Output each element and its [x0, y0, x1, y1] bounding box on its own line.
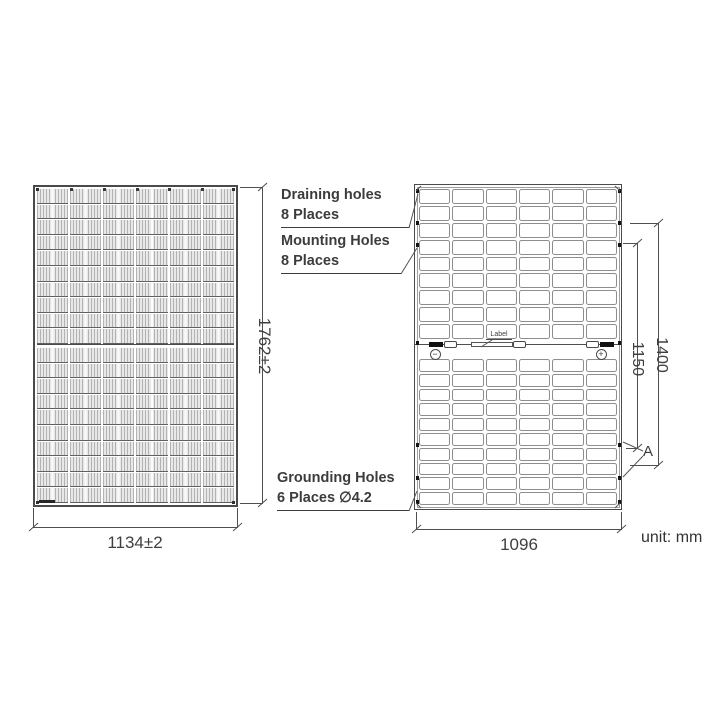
front-cell: [203, 348, 234, 363]
front-cell: [37, 189, 68, 204]
back-cell: [519, 257, 550, 272]
back-cell: [452, 389, 483, 402]
front-cell: [37, 251, 68, 266]
front-cell: [203, 205, 234, 220]
front-cell: [170, 189, 201, 204]
back-cell: [452, 273, 483, 288]
front-cell: [170, 473, 201, 488]
front-cell: [103, 442, 134, 457]
front-cell: [136, 267, 167, 282]
callout-line: Mounting Holes: [281, 231, 401, 251]
back-cell: [486, 492, 517, 505]
front-cell: [37, 426, 68, 441]
junction-box-left: [444, 341, 457, 348]
back-cell: [586, 477, 617, 490]
back-cell: [519, 324, 550, 339]
callout-mounting-holes: Mounting Holes 8 Places: [281, 231, 401, 274]
back-cell: [486, 433, 517, 446]
front-height-dimension: 1762±2: [254, 311, 274, 381]
back-cell: [519, 307, 550, 322]
front-cell: [203, 314, 234, 329]
back-cell: [419, 273, 450, 288]
junction-connector-left: [429, 342, 443, 347]
front-cell: [203, 329, 234, 344]
back-cell: [519, 223, 550, 238]
front-cell: [170, 395, 201, 410]
back-cell: [519, 290, 550, 305]
back-cell: [519, 418, 550, 431]
front-cell: [203, 410, 234, 425]
front-cell: [170, 364, 201, 379]
front-cell: [203, 236, 234, 251]
back-cell: [552, 463, 583, 476]
back-cell: [586, 448, 617, 461]
front-cell: [203, 283, 234, 298]
callout-line: Draining holes: [281, 185, 409, 205]
front-cell: [170, 410, 201, 425]
back-cell: [552, 403, 583, 416]
back-cell: [419, 463, 450, 476]
back-width-dimension-line: [412, 512, 626, 533]
back-width-dimension: 1096: [479, 535, 559, 555]
back-cell: [419, 433, 450, 446]
front-cell: [103, 379, 134, 394]
back-cell: [452, 240, 483, 255]
front-cell: [136, 251, 167, 266]
front-cell: [70, 348, 101, 363]
front-frame-mark: [168, 188, 171, 191]
front-cell: [203, 251, 234, 266]
back-cell: [519, 448, 550, 461]
front-cell: [70, 329, 101, 344]
back-cell: [419, 324, 450, 339]
back-cell: [452, 374, 483, 387]
front-cell: [170, 205, 201, 220]
back-cell: [486, 273, 517, 288]
back-cell: [486, 477, 517, 490]
front-cell: [136, 457, 167, 472]
front-cell: [170, 379, 201, 394]
frame-hole-mark: [618, 341, 621, 345]
front-cell: [136, 442, 167, 457]
front-frame-mark: [70, 188, 73, 191]
front-cell: [103, 329, 134, 344]
back-cell: [519, 273, 550, 288]
nameplate: [471, 342, 513, 347]
back-cell: [519, 403, 550, 416]
junction-box-right: [586, 341, 599, 348]
frame-hole-mark: [618, 221, 621, 225]
front-cell: [70, 364, 101, 379]
back-cell: [486, 374, 517, 387]
callout-line: 6 Places ∅4.2: [277, 488, 409, 508]
front-cell: [136, 220, 167, 235]
back-cell: [452, 463, 483, 476]
back-cell: [552, 374, 583, 387]
back-cell: [452, 257, 483, 272]
back-cell: [519, 206, 550, 221]
back-cell: [519, 189, 550, 204]
back-cell: [552, 189, 583, 204]
front-cell: [203, 189, 234, 204]
back-cell: [419, 189, 450, 204]
back-cell: [519, 477, 550, 490]
back-cell: [419, 206, 450, 221]
junction-connector-right: [600, 342, 614, 347]
back-cell: [586, 189, 617, 204]
front-cell: [170, 348, 201, 363]
section-a-leader-lines: [623, 442, 643, 477]
back-cell: [486, 206, 517, 221]
front-cell: [103, 220, 134, 235]
front-cell: [70, 379, 101, 394]
front-cell: [203, 426, 234, 441]
back-cell: [452, 403, 483, 416]
back-cell: [486, 223, 517, 238]
front-cell: [37, 220, 68, 235]
junction-box-center: [513, 341, 526, 348]
back-cell: [486, 418, 517, 431]
back-cell: [519, 374, 550, 387]
nameplate-label-text: Label: [486, 330, 512, 340]
back-cell: [519, 359, 550, 372]
back-content: − +: [419, 189, 617, 505]
front-corner-mark: [36, 188, 39, 191]
callout-line: 8 Places: [281, 205, 409, 225]
back-cell: [452, 290, 483, 305]
back-cell: [552, 257, 583, 272]
frame-hole-mark: [416, 443, 419, 447]
front-cell: [37, 473, 68, 488]
front-cell: [136, 205, 167, 220]
front-cell: [170, 329, 201, 344]
front-bottom-cell-grid: [37, 348, 234, 503]
back-cell: [552, 418, 583, 431]
back-cell: [419, 389, 450, 402]
frame-hole-mark: [416, 476, 419, 480]
back-cell: [586, 359, 617, 372]
back-cell: [419, 418, 450, 431]
front-cell: [136, 426, 167, 441]
front-cell: [37, 410, 68, 425]
positive-terminal-symbol: +: [596, 349, 607, 360]
back-cell: [452, 189, 483, 204]
back-cell: [552, 324, 583, 339]
back-cell: [419, 240, 450, 255]
callout-draining-holes: Draining holes 8 Places: [281, 185, 409, 228]
back-cell: [586, 463, 617, 476]
front-cell: [70, 410, 101, 425]
back-cell: [486, 290, 517, 305]
back-cell: [552, 359, 583, 372]
front-cell: [37, 442, 68, 457]
front-cell: [170, 314, 201, 329]
back-cell: [419, 257, 450, 272]
back-cell: [452, 307, 483, 322]
callout-line: 8 Places: [281, 251, 401, 271]
back-cell: [586, 290, 617, 305]
front-cell: [103, 488, 134, 503]
front-cell: [170, 236, 201, 251]
front-cell: [103, 298, 134, 313]
back-cell: [486, 257, 517, 272]
front-cell: [203, 457, 234, 472]
front-label-bar: [39, 500, 55, 503]
front-cell: [70, 457, 101, 472]
back-cell: [552, 477, 583, 490]
frame-hole-mark: [416, 243, 419, 247]
front-cell: [103, 251, 134, 266]
front-cell: [37, 379, 68, 394]
back-cell: [552, 206, 583, 221]
front-cell: [136, 364, 167, 379]
back-inner-height-dimension: 1150: [628, 324, 646, 394]
front-cell: [103, 426, 134, 441]
front-cell: [70, 283, 101, 298]
front-frame-mark: [201, 188, 204, 191]
front-cell: [136, 395, 167, 410]
front-cell: [37, 267, 68, 282]
back-cell: [452, 418, 483, 431]
front-cell: [37, 329, 68, 344]
back-cell: [552, 223, 583, 238]
front-cell: [103, 457, 134, 472]
back-cell: [486, 307, 517, 322]
back-cell: [419, 492, 450, 505]
back-cell: [586, 257, 617, 272]
front-cell: [203, 220, 234, 235]
front-cell: [103, 267, 134, 282]
front-cell: [103, 189, 134, 204]
front-cell: [203, 488, 234, 503]
back-cell: [419, 477, 450, 490]
front-cell: [103, 236, 134, 251]
front-cell: [103, 395, 134, 410]
back-cell: [586, 240, 617, 255]
back-cell: [452, 206, 483, 221]
front-cell: [103, 364, 134, 379]
frame-hole-mark: [416, 341, 419, 345]
front-cell: [203, 473, 234, 488]
front-cell: [70, 220, 101, 235]
back-cell: [419, 359, 450, 372]
front-cell: [136, 283, 167, 298]
back-cell: [552, 307, 583, 322]
back-cell: [519, 463, 550, 476]
back-cell: [486, 389, 517, 402]
front-cell: [37, 236, 68, 251]
front-cell: [37, 283, 68, 298]
front-cell: [37, 457, 68, 472]
back-cell: [486, 403, 517, 416]
unit-note: unit: mm: [641, 529, 719, 547]
back-cell: [452, 324, 483, 339]
front-cell: [170, 442, 201, 457]
front-cell: [203, 298, 234, 313]
front-cell: [136, 348, 167, 363]
back-top-cell-grid: [419, 189, 617, 339]
front-width-dimension-line: [29, 508, 242, 531]
back-cell: [419, 307, 450, 322]
back-cell: [552, 273, 583, 288]
back-cell: [586, 206, 617, 221]
front-cell: [203, 442, 234, 457]
back-cell: [519, 240, 550, 255]
front-cell: [170, 220, 201, 235]
front-cell: [103, 205, 134, 220]
front-cell: [37, 314, 68, 329]
front-cell: [70, 236, 101, 251]
back-cell: [486, 359, 517, 372]
front-cell: [70, 267, 101, 282]
front-width-dimension: 1134±2: [95, 533, 175, 553]
front-corner-mark: [232, 501, 235, 504]
front-cell: [70, 488, 101, 503]
back-cell: [519, 492, 550, 505]
back-cell: [586, 273, 617, 288]
back-cell: [586, 374, 617, 387]
frame-hole-mark: [618, 476, 621, 480]
frame-hole-mark: [618, 243, 621, 247]
back-cell: [552, 448, 583, 461]
front-cell: [170, 488, 201, 503]
back-cell: [452, 223, 483, 238]
front-cell: [170, 426, 201, 441]
back-cell: [586, 324, 617, 339]
back-bottom-cell-grid: [419, 359, 617, 505]
back-cell: [552, 240, 583, 255]
back-cell: [519, 433, 550, 446]
front-cell: [37, 205, 68, 220]
front-cell: [170, 283, 201, 298]
front-cell: [203, 395, 234, 410]
front-cell: [170, 298, 201, 313]
front-cell: [70, 205, 101, 220]
front-cell: [37, 395, 68, 410]
back-cell: [586, 492, 617, 505]
callout-grounding-holes: Grounding Holes 6 Places ∅4.2: [277, 468, 409, 511]
front-frame-mark: [103, 188, 106, 191]
front-view-panel: [33, 185, 238, 507]
back-cell: [452, 433, 483, 446]
back-cell: [486, 448, 517, 461]
back-cell: [586, 403, 617, 416]
front-cell: [170, 267, 201, 282]
back-cell: [452, 448, 483, 461]
back-cell: [419, 448, 450, 461]
back-outer-height-dimension: 1400: [652, 320, 670, 390]
negative-terminal-symbol: −: [430, 349, 441, 360]
front-cell: [170, 457, 201, 472]
back-cell: [486, 189, 517, 204]
front-cell: [203, 379, 234, 394]
front-cell: [70, 442, 101, 457]
front-cell: [70, 251, 101, 266]
back-cell: [419, 290, 450, 305]
front-cell: [136, 488, 167, 503]
front-cell: [70, 426, 101, 441]
front-cell: [103, 348, 134, 363]
front-cell: [103, 314, 134, 329]
front-cell: [70, 298, 101, 313]
front-cell: [203, 267, 234, 282]
front-cell: [37, 348, 68, 363]
solar-panel-dimension-diagram: − +: [0, 0, 720, 720]
frame-hole-mark: [618, 443, 621, 447]
back-cell: [586, 418, 617, 431]
junction-box-strip: − +: [419, 339, 617, 359]
front-cell: [136, 473, 167, 488]
front-cell: [136, 298, 167, 313]
front-frame-mark: [136, 188, 139, 191]
front-cell: [70, 395, 101, 410]
front-cell: [136, 314, 167, 329]
back-cell: [519, 389, 550, 402]
front-cell: [103, 410, 134, 425]
front-cell: [37, 364, 68, 379]
front-cell: [170, 251, 201, 266]
front-cell: [136, 379, 167, 394]
front-cell: [136, 410, 167, 425]
back-cell: [586, 389, 617, 402]
back-cell: [452, 477, 483, 490]
back-cell: [586, 223, 617, 238]
back-cell: [552, 492, 583, 505]
front-cell: [136, 236, 167, 251]
front-cell: [70, 189, 101, 204]
back-cell: [419, 374, 450, 387]
back-view-panel: − +: [414, 184, 622, 510]
back-cell: [419, 403, 450, 416]
frame-hole-mark: [416, 221, 419, 225]
front-cell: [70, 314, 101, 329]
front-cell: [70, 473, 101, 488]
front-cell: [136, 329, 167, 344]
back-cell: [552, 389, 583, 402]
front-corner-mark: [232, 188, 235, 191]
back-cell: [586, 307, 617, 322]
front-cell: [103, 283, 134, 298]
back-cell: [552, 433, 583, 446]
back-cell: [552, 290, 583, 305]
front-cell: [203, 364, 234, 379]
back-cell: [419, 223, 450, 238]
front-cell: [37, 298, 68, 313]
back-cell: [586, 433, 617, 446]
back-cell: [452, 492, 483, 505]
front-cell: [136, 189, 167, 204]
back-cell: [486, 240, 517, 255]
callout-line: Grounding Holes: [277, 468, 409, 488]
back-cell: [486, 463, 517, 476]
front-top-cell-grid: [37, 189, 234, 344]
front-cell: [103, 473, 134, 488]
section-marker-a: A: [643, 443, 653, 460]
back-cell: [452, 359, 483, 372]
